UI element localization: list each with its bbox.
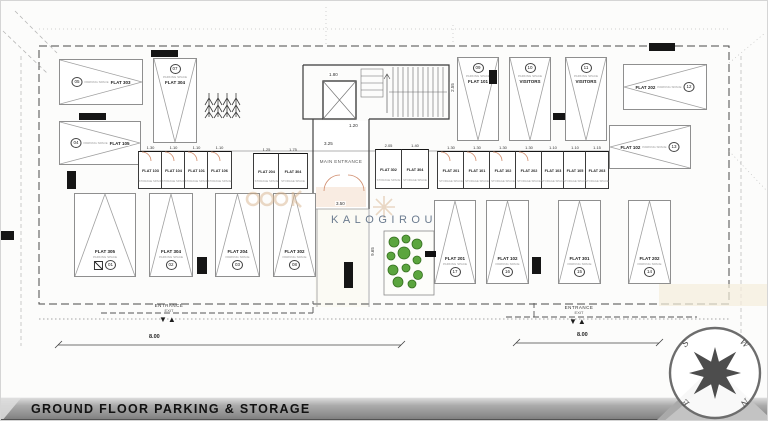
cell-sub-label: STORAGE SPACE bbox=[255, 179, 279, 183]
cell-flat-label: FLAT 102 bbox=[495, 169, 512, 173]
spot-sub-label: PARKING SPACE bbox=[282, 255, 306, 259]
spot-flat-label: FLAT 202 bbox=[640, 256, 660, 261]
spot-flat-label: FLAT 102 bbox=[498, 256, 518, 261]
storage-cell: 1.30FLAT 201STORAGE SPACE bbox=[437, 151, 465, 189]
storage-cell: 1.30FLAT 101STORAGE SPACE bbox=[463, 151, 491, 189]
cell-dimension: 1.40 bbox=[411, 143, 419, 148]
spot-sub-label: PARKING SPACE bbox=[642, 145, 666, 149]
parking-spot: FLAT 204PARKING SPACE03 bbox=[215, 193, 260, 277]
cell-flat-label: FLAT 103 bbox=[142, 169, 159, 173]
spot-flat-label: FLAT 303 bbox=[111, 80, 131, 85]
spot-info: 07PARKING SPACEFLAT 304 bbox=[163, 64, 187, 85]
cell-dimension: 2.05 bbox=[385, 143, 393, 148]
spot-info: 05PARKING SPACEFLAT 303 bbox=[72, 77, 131, 87]
cell-sub-label: STORAGE SPACE bbox=[139, 179, 163, 183]
cell-dimension: 1.30 bbox=[473, 145, 481, 150]
spot-info: FLAT 304PARKING SPACE02 bbox=[159, 249, 183, 270]
spot-info: FLAT 202PARKING SPACE12 bbox=[636, 82, 695, 92]
dimension-lines bbox=[55, 339, 663, 348]
cell-flat-label: FLAT 101 bbox=[188, 169, 205, 173]
spot-sub-label: PARKING SPACE bbox=[466, 74, 490, 78]
cell-dimension: 1.10 bbox=[216, 145, 224, 150]
parking-spot: FLAT 202PARKING SPACE12 bbox=[623, 64, 707, 110]
parking-spot: 10PARKING SPACEVISITORS bbox=[509, 57, 551, 141]
cell-sub-label: STORAGE SPACE bbox=[403, 178, 427, 182]
parking-spot: FLAT 102PARKING SPACE16 bbox=[486, 200, 529, 284]
ramp-arrows-icon: ▼▲ bbox=[159, 315, 177, 324]
cell-dimension: 1.10 bbox=[571, 145, 579, 150]
cell-sub-label: STORAGE SPACE bbox=[185, 179, 209, 183]
cell-sub-label: STORAGE SPACE bbox=[208, 179, 232, 183]
spot-info: FLAT 201PARKING SPACE17 bbox=[443, 256, 467, 277]
spot-info: FLAT 102PARKING SPACE13 bbox=[621, 142, 680, 152]
sheet-title: GROUND FLOOR PARKING & STORAGE bbox=[31, 402, 311, 416]
parking-spot: FLAT 202PARKING SPACE14 bbox=[628, 200, 671, 284]
spot-sub-label: PARKING SPACE bbox=[495, 262, 519, 266]
spot-flat-label: FLAT 201 bbox=[445, 256, 465, 261]
cell-sub-label: STORAGE SPACE bbox=[465, 179, 489, 183]
spot-sub-label: PARKING SPACE bbox=[518, 74, 542, 78]
cell-dimension: 1.25 bbox=[263, 147, 271, 152]
spot-flat-label: VISITORS bbox=[576, 79, 597, 84]
cell-sub-label: STORAGE SPACE bbox=[563, 179, 587, 183]
cell-sub-label: STORAGE SPACE bbox=[585, 179, 609, 183]
spot-sub-label: PARKING SPACE bbox=[163, 75, 187, 79]
spot-number-badge: 15 bbox=[574, 267, 585, 277]
accessible-parking-icon bbox=[94, 261, 103, 270]
spot-flat-label: FLAT 102 bbox=[621, 145, 641, 150]
entrance-exit-left: ENTRANCE EXIT bbox=[139, 303, 199, 313]
spot-number-badge: 05 bbox=[72, 77, 83, 87]
spot-info: FLAT 302PARKING SPACE08 bbox=[282, 249, 306, 270]
dimension-label: 9.65 bbox=[370, 246, 375, 257]
spot-info: 11PARKING SPACEVISITORS bbox=[574, 63, 598, 84]
cell-flat-label: FLAT 302 bbox=[380, 168, 397, 172]
ramp-arrows-icon: ▼▲ bbox=[569, 317, 587, 326]
spot-flat-label: FLAT 304 bbox=[161, 249, 181, 254]
main-entrance-label: MAIN ENTRANCE bbox=[317, 159, 365, 166]
parking-spot: 11PARKING SPACEVISITORS bbox=[565, 57, 607, 141]
cell-dimension: 1.75 bbox=[289, 147, 297, 152]
ramp-dimension: 8.00 bbox=[149, 334, 160, 340]
cell-dimension: 1.30 bbox=[447, 145, 455, 150]
spot-number-badge: 12 bbox=[683, 82, 694, 92]
dimension-label: 3.50 bbox=[335, 201, 346, 206]
spot-flat-label: FLAT 101 bbox=[468, 79, 488, 84]
cell-sub-label: STORAGE SPACE bbox=[377, 178, 401, 182]
cell-flat-label: FLAT 106 bbox=[211, 169, 228, 173]
parking-spot: 04PARKING SPACEFLAT 105 bbox=[59, 121, 141, 165]
cell-flat-label: FLAT 104 bbox=[165, 169, 182, 173]
spot-info: FLAT 301PARKING SPACE15 bbox=[567, 256, 591, 277]
storage-cell: 1.10FLAT 103STORAGE SPACE bbox=[541, 151, 565, 189]
spot-number-badge: 04 bbox=[71, 138, 82, 148]
parking-spot: FLAT 301PARKING SPACE15 bbox=[558, 200, 601, 284]
parking-spot: 09PARKING SPACEFLAT 101 bbox=[457, 57, 499, 141]
spot-number-badge: 03 bbox=[232, 260, 243, 270]
storage-cell: 1.15FLAT 203STORAGE SPACE bbox=[585, 151, 609, 189]
spot-sub-label: PARKING SPACE bbox=[637, 262, 661, 266]
storage-cell: 1.10FLAT 101STORAGE SPACE bbox=[184, 151, 209, 189]
spot-flat-label: FLAT 204 bbox=[228, 249, 248, 254]
brand-watermark: KALOGIROU bbox=[331, 214, 437, 226]
spot-flat-label: VISITORS bbox=[520, 79, 541, 84]
spot-info: FLAT 305PARKING SPACE01 bbox=[93, 249, 117, 270]
parking-spot-accessible: FLAT 305PARKING SPACE01 bbox=[74, 193, 136, 277]
spot-number-badge: 02 bbox=[166, 260, 177, 270]
cell-flat-label: FLAT 203 bbox=[589, 169, 606, 173]
spot-flat-label: FLAT 304 bbox=[165, 80, 185, 85]
cell-dimension: 1.10 bbox=[170, 145, 178, 150]
spot-sub-label: PARKING SPACE bbox=[567, 262, 591, 266]
cell-flat-label: FLAT 103 bbox=[545, 169, 562, 173]
spot-flat-label: FLAT 302 bbox=[285, 249, 305, 254]
cell-sub-label: STORAGE SPACE bbox=[162, 179, 186, 183]
spot-sub-label: PARKING SPACE bbox=[93, 255, 117, 259]
spot-sub-label: PARKING SPACE bbox=[85, 80, 109, 84]
storage-cell: 1.10FLAT 106STORAGE SPACE bbox=[207, 151, 232, 189]
spot-flat-label: FLAT 105 bbox=[110, 141, 130, 146]
spot-sub-label: PARKING SPACE bbox=[657, 85, 681, 89]
spot-number-badge: 09 bbox=[473, 63, 484, 73]
spot-flat-label: FLAT 202 bbox=[636, 85, 656, 90]
cell-dimension: 1.10 bbox=[193, 145, 201, 150]
spot-number-badge: 11 bbox=[581, 63, 592, 73]
cell-sub-label: STORAGE SPACE bbox=[281, 179, 305, 183]
staircase bbox=[361, 67, 447, 117]
spot-number-badge: 07 bbox=[170, 64, 181, 74]
storage-cell: 1.30FLAT 102STORAGE SPACE bbox=[489, 151, 517, 189]
cell-flat-label: FLAT 105 bbox=[567, 169, 584, 173]
spot-number-badge: 10 bbox=[525, 63, 536, 73]
cell-flat-label: FLAT 202 bbox=[521, 169, 538, 173]
dimension-label: 1.80 bbox=[328, 72, 339, 77]
cell-sub-label: STORAGE SPACE bbox=[491, 179, 515, 183]
storage-cell: 1.10FLAT 104STORAGE SPACE bbox=[161, 151, 186, 189]
cell-dimension: 1.15 bbox=[593, 145, 601, 150]
dimension-label: 1.20 bbox=[348, 123, 359, 128]
spot-number-badge: 13 bbox=[668, 142, 679, 152]
storage-cell: 2.05FLAT 302STORAGE SPACE bbox=[375, 149, 402, 189]
cell-sub-label: STORAGE SPACE bbox=[541, 179, 565, 183]
spot-info: FLAT 204PARKING SPACE03 bbox=[225, 249, 249, 270]
ramp-left-line bbox=[101, 301, 313, 313]
compass-rose: S W E N bbox=[665, 323, 765, 421]
spot-info: 04PARKING SPACEFLAT 105 bbox=[71, 138, 130, 148]
parking-spot: 07PARKING SPACEFLAT 304 bbox=[153, 58, 197, 143]
spot-number-badge: 14 bbox=[644, 267, 655, 277]
parking-spot: FLAT 302PARKING SPACE08 bbox=[273, 193, 316, 277]
spot-info: FLAT 102PARKING SPACE16 bbox=[495, 256, 519, 277]
parking-spot: FLAT 102PARKING SPACE13 bbox=[609, 125, 691, 169]
storage-cell: 1.30FLAT 202STORAGE SPACE bbox=[515, 151, 543, 189]
spot-number-badge: 16 bbox=[502, 267, 513, 277]
spot-sub-label: PARKING SPACE bbox=[574, 74, 598, 78]
storage-cell: 1.40FLAT 304STORAGE SPACE bbox=[401, 149, 429, 189]
spot-sub-label: PARKING SPACE bbox=[443, 262, 467, 266]
spot-flat-label: FLAT 305 bbox=[95, 249, 115, 254]
spot-info: FLAT 202PARKING SPACE14 bbox=[637, 256, 661, 277]
badge-row: 01 bbox=[94, 260, 116, 270]
storage-cell: 1.25FLAT 204STORAGE SPACE bbox=[253, 153, 280, 189]
cell-dimension: 1.10 bbox=[549, 145, 557, 150]
spot-sub-label: PARKING SPACE bbox=[225, 255, 249, 259]
dimension-label: 3.25 bbox=[323, 141, 334, 146]
cell-flat-label: FLAT 304 bbox=[407, 168, 424, 172]
cell-flat-label: FLAT 201 bbox=[443, 169, 460, 173]
exit-label: EXIT bbox=[139, 308, 199, 313]
exit-label: EXIT bbox=[549, 310, 609, 315]
ramp-dimension: 8.00 bbox=[577, 332, 588, 338]
cell-sub-label: STORAGE SPACE bbox=[439, 179, 463, 183]
cell-dimension: 1.30 bbox=[525, 145, 533, 150]
spot-flat-label: FLAT 301 bbox=[570, 256, 590, 261]
spot-sub-label: PARKING SPACE bbox=[84, 141, 108, 145]
entrance-exit-right: ENTRANCE EXIT bbox=[549, 305, 609, 315]
cell-sub-label: STORAGE SPACE bbox=[517, 179, 541, 183]
storage-cell: 1.75FLAT 304STORAGE SPACE bbox=[278, 153, 308, 189]
spot-number-badge: 08 bbox=[289, 260, 300, 270]
spot-info: 09PARKING SPACEFLAT 101 bbox=[466, 63, 490, 84]
cell-flat-label: FLAT 204 bbox=[258, 170, 275, 174]
parking-spot: FLAT 304PARKING SPACE02 bbox=[149, 193, 193, 277]
storage-cell: 1.10FLAT 105STORAGE SPACE bbox=[563, 151, 587, 189]
cell-flat-label: FLAT 304 bbox=[285, 170, 302, 174]
storage-cell: 1.30FLAT 103STORAGE SPACE bbox=[138, 151, 163, 189]
spot-number-badge: 17 bbox=[450, 267, 461, 277]
dimension-label: 2.55 bbox=[450, 82, 455, 93]
cell-flat-label: FLAT 101 bbox=[469, 169, 486, 173]
cell-dimension: 1.30 bbox=[499, 145, 507, 150]
spot-number-badge: 01 bbox=[105, 260, 116, 270]
spot-sub-label: PARKING SPACE bbox=[159, 255, 183, 259]
cell-dimension: 1.30 bbox=[147, 145, 155, 150]
spot-info: 10PARKING SPACEVISITORS bbox=[518, 63, 542, 84]
floor-plan-sheet: 05PARKING SPACEFLAT 303 04PARKING SPACEF… bbox=[0, 0, 768, 421]
parking-spot: 05PARKING SPACEFLAT 303 bbox=[59, 59, 143, 105]
parking-spot: FLAT 201PARKING SPACE17 bbox=[434, 200, 476, 284]
